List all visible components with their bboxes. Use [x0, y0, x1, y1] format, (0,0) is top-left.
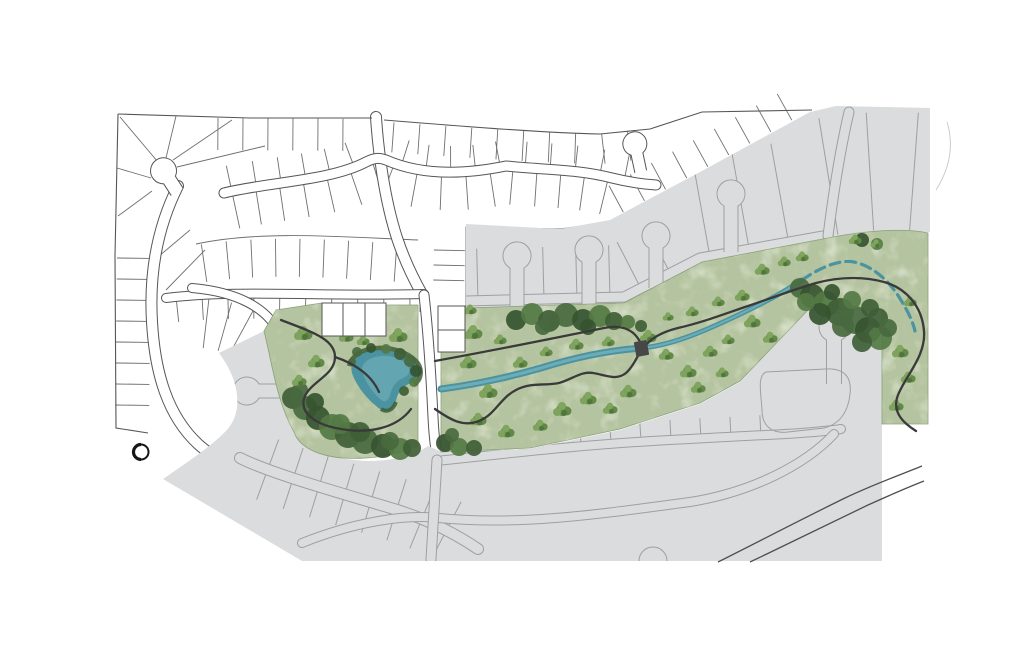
site-plan-map: [0, 0, 1023, 662]
footbridge: [634, 340, 649, 357]
site-plan-page: [0, 0, 1023, 662]
circle-marker: [134, 445, 149, 460]
